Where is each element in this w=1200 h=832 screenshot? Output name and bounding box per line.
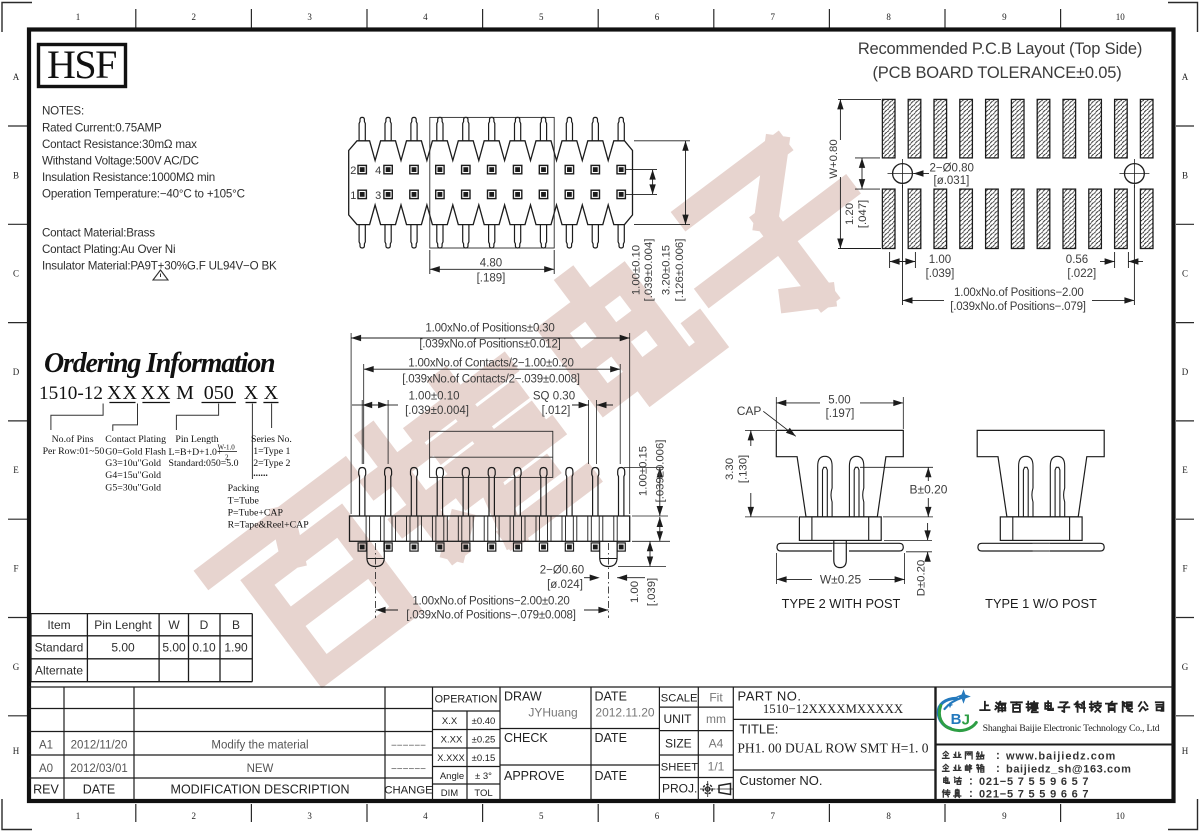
svg-text:E: E — [13, 465, 19, 475]
svg-text:DIM: DIM — [441, 788, 459, 799]
svg-text:Operation Temperature:−40°C to: Operation Temperature:−40°C to +105°C — [42, 188, 245, 201]
svg-text:Contact Resistance:30mΩ max: Contact Resistance:30mΩ max — [42, 138, 197, 151]
svg-text:G: G — [13, 662, 20, 672]
svg-text:[.039±0.004]: [.039±0.004] — [643, 239, 655, 302]
svg-text:X.XXX: X.XXX — [437, 753, 464, 763]
svg-text:[.012]: [.012] — [542, 405, 571, 417]
svg-text:W: W — [168, 618, 180, 632]
svg-text:JYHuang: JYHuang — [528, 706, 577, 720]
svg-text:1.00±0.10: 1.00±0.10 — [630, 245, 642, 295]
svg-text:A4: A4 — [709, 737, 724, 751]
svg-text:CAP: CAP — [737, 404, 762, 418]
svg-text::: : — [996, 763, 1000, 775]
svg-text:Pin Length: Pin Length — [175, 434, 218, 445]
svg-text:10: 10 — [1116, 811, 1126, 821]
svg-text:Rated Current:0.75AMP: Rated Current:0.75AMP — [42, 122, 162, 135]
svg-text:B: B — [13, 170, 19, 180]
svg-text:CHECK: CHECK — [504, 731, 548, 745]
svg-text:Recommended P.C.B Layout (Top: Recommended P.C.B Layout (Top Side) — [858, 40, 1142, 58]
svg-text:4.80: 4.80 — [480, 258, 502, 270]
svg-text:6: 6 — [655, 12, 660, 22]
svg-text:J: J — [962, 712, 970, 729]
svg-text:B: B — [1182, 170, 1188, 180]
svg-text:C: C — [1182, 269, 1188, 279]
svg-text:1.00±0.15: 1.00±0.15 — [638, 446, 650, 496]
svg-text:NOTES:: NOTES: — [42, 105, 84, 118]
svg-text:7: 7 — [771, 12, 776, 22]
svg-text:021−5 7 5 5 9 6 5 7: 021−5 7 5 5 9 6 5 7 — [979, 776, 1089, 788]
svg-text:1/1: 1/1 — [708, 760, 725, 774]
svg-text:[.039xNo.of Contacts/2−.039±0.: [.039xNo.of Contacts/2−.039±0.008] — [402, 374, 580, 386]
svg-text:8: 8 — [886, 12, 891, 22]
svg-text:4: 4 — [375, 165, 381, 177]
svg-text:1.00: 1.00 — [929, 254, 951, 266]
svg-text:A0: A0 — [39, 763, 53, 775]
svg-text:H: H — [13, 746, 20, 756]
svg-text:[.039±0.006]: [.039±0.006] — [655, 440, 667, 503]
svg-text:X: X — [244, 382, 259, 404]
svg-text:SCALE: SCALE — [661, 693, 698, 705]
svg-text:APPROVE: APPROVE — [504, 769, 564, 783]
svg-text:1.00xNo.of Positions±0.30: 1.00xNo.of Positions±0.30 — [425, 323, 554, 335]
svg-text:Contact Material:Brass: Contact Material:Brass — [42, 227, 155, 240]
svg-text:Series No.: Series No. — [251, 434, 292, 445]
svg-text:050: 050 — [204, 382, 234, 404]
svg-text:(PCB BOARD TOLERANCE±0.05): (PCB BOARD TOLERANCE±0.05) — [873, 64, 1122, 82]
svg-text:DATE: DATE — [595, 769, 627, 783]
svg-text:G: G — [1182, 662, 1189, 672]
svg-text:TYPE 1 W/O POST: TYPE 1 W/O POST — [985, 596, 1097, 611]
svg-text:3.20±0.15: 3.20±0.15 — [660, 245, 672, 295]
svg-text::: : — [969, 788, 973, 800]
svg-text:5.00: 5.00 — [162, 641, 186, 655]
svg-text:M: M — [176, 382, 194, 404]
svg-text:−−−−−−: −−−−−− — [391, 764, 426, 775]
svg-text:C: C — [13, 269, 19, 279]
svg-text:Ordering Information: Ordering Information — [44, 348, 275, 379]
svg-text:[.130]: [.130] — [738, 455, 750, 483]
svg-text:−−−−−−: −−−−−− — [391, 741, 426, 752]
svg-text:Fit: Fit — [709, 691, 723, 705]
svg-text:DATE: DATE — [595, 690, 627, 704]
svg-text:[.039]: [.039] — [646, 578, 658, 606]
svg-text:2−Ø0.60: 2−Ø0.60 — [540, 565, 584, 577]
svg-text:Contact Plating:Au Over Ni: Contact Plating:Au Over Ni — [42, 243, 175, 256]
svg-text:SIZE: SIZE — [665, 737, 692, 751]
svg-text:XX: XX — [107, 382, 138, 404]
svg-text:DATE: DATE — [83, 783, 115, 797]
svg-text:[.039±0.004]: [.039±0.004] — [405, 405, 469, 417]
svg-text:X.XX: X.XX — [441, 735, 463, 746]
svg-text:G0=Gold Flash: G0=Gold Flash — [105, 446, 166, 457]
svg-text:A: A — [13, 72, 20, 82]
svg-text:7: 7 — [771, 811, 776, 821]
svg-text:9: 9 — [1002, 811, 1007, 821]
svg-text:UNIT: UNIT — [664, 712, 693, 726]
svg-text:mm: mm — [706, 712, 726, 726]
svg-text:A1: A1 — [39, 740, 53, 752]
svg-text:G5=30u"Gold: G5=30u"Gold — [105, 482, 161, 493]
svg-text:4: 4 — [423, 12, 428, 22]
svg-text:[.039]: [.039] — [926, 268, 955, 280]
svg-text:A: A — [1182, 72, 1189, 82]
svg-text:W±0.25: W±0.25 — [820, 573, 862, 587]
svg-text:[.189]: [.189] — [477, 273, 506, 285]
svg-text:TOL: TOL — [474, 788, 492, 799]
svg-text:W-1.0: W-1.0 — [218, 444, 236, 452]
svg-text:F: F — [13, 564, 18, 574]
svg-text:2: 2 — [192, 811, 197, 821]
svg-text:PROJ.: PROJ. — [662, 782, 697, 796]
svg-text:[.126±0.006]: [.126±0.006] — [674, 239, 686, 302]
svg-text:0.10: 0.10 — [192, 641, 216, 655]
svg-text:SHEET: SHEET — [661, 762, 698, 774]
svg-text:HSF: HSF — [47, 42, 116, 87]
svg-text:1: 1 — [76, 12, 81, 22]
svg-text:±0.40: ±0.40 — [472, 716, 496, 727]
svg-text:Shanghai Baijie Electronic Tec: Shanghai Baijie Electronic Technology Co… — [983, 723, 1160, 734]
svg-text:[ø.031]: [ø.031] — [934, 175, 970, 187]
svg-text:Contact Plating: Contact Plating — [105, 434, 166, 445]
svg-text:± 3°: ± 3° — [475, 771, 492, 782]
svg-text:1510-12: 1510-12 — [39, 383, 103, 404]
svg-text:1.00xNo.of Contacts/2−1.00±0.2: 1.00xNo.of Contacts/2−1.00±0.20 — [408, 358, 573, 370]
svg-text:L=B+D+1.0+: L=B+D+1.0+ — [169, 447, 223, 458]
svg-text:W+0.80: W+0.80 — [828, 139, 840, 178]
svg-text:T=Tube: T=Tube — [228, 495, 260, 506]
svg-text:[ø.024]: [ø.024] — [547, 579, 583, 591]
svg-text:2: 2 — [350, 165, 356, 177]
svg-text:F: F — [1182, 564, 1187, 574]
svg-text:TYPE 2 WITH POST: TYPE 2 WITH POST — [782, 596, 901, 611]
svg-text:3: 3 — [307, 12, 312, 22]
svg-text:[.197]: [.197] — [826, 408, 855, 420]
svg-text:DRAW: DRAW — [504, 690, 542, 704]
svg-text:Packing: Packing — [228, 483, 260, 494]
svg-text:9: 9 — [1002, 12, 1007, 22]
svg-text:B: B — [232, 618, 240, 632]
svg-text:10: 10 — [1116, 12, 1126, 22]
svg-text:[.039xNo.of Positions−.079±0.0: [.039xNo.of Positions−.079±0.008] — [406, 610, 575, 622]
svg-text:D: D — [200, 618, 209, 632]
svg-text:PH1. 00 DUAL ROW SMT H=1. 0: PH1. 00 DUAL ROW SMT H=1. 0 — [737, 741, 928, 756]
svg-text:Customer NO.: Customer NO. — [739, 773, 822, 788]
svg-text:REV: REV — [33, 783, 59, 797]
svg-text:1: 1 — [350, 190, 356, 202]
svg-text::: : — [996, 750, 1000, 762]
svg-text:XX: XX — [141, 382, 172, 404]
svg-text:8: 8 — [886, 811, 891, 821]
svg-text:1.00: 1.00 — [629, 581, 641, 603]
svg-text:No.of Pins: No.of Pins — [52, 434, 94, 445]
svg-text:1=Type 1: 1=Type 1 — [253, 446, 290, 457]
svg-text:2: 2 — [192, 12, 197, 22]
svg-text:Pin Lenght: Pin Lenght — [94, 618, 152, 632]
svg-text:baijiedz_sh@163.com: baijiedz_sh@163.com — [1006, 764, 1131, 776]
svg-text:P=Tube+CAP: P=Tube+CAP — [228, 508, 284, 519]
svg-text:4: 4 — [423, 811, 428, 821]
svg-text:3: 3 — [375, 190, 381, 202]
svg-text:2012/11/20: 2012/11/20 — [71, 740, 128, 752]
svg-text:www.baijiedz.com: www.baijiedz.com — [1005, 751, 1116, 763]
svg-text:5.00: 5.00 — [111, 641, 135, 655]
svg-text:1.00xNo.of Positions−2.00±0.20: 1.00xNo.of Positions−2.00±0.20 — [412, 596, 569, 608]
svg-text:5: 5 — [539, 811, 544, 821]
svg-text:D: D — [13, 367, 20, 377]
svg-text:[.022]: [.022] — [1067, 268, 1096, 280]
svg-text:H: H — [1182, 746, 1189, 756]
svg-text:1.20: 1.20 — [844, 203, 856, 225]
svg-text:D±0.20: D±0.20 — [916, 560, 928, 596]
svg-text:TITLE:: TITLE: — [739, 722, 778, 737]
svg-text:6: 6 — [655, 811, 660, 821]
svg-text:G3=10u"Gold: G3=10u"Gold — [105, 458, 161, 469]
svg-text::: : — [969, 776, 973, 788]
svg-text:±0.25: ±0.25 — [472, 735, 496, 746]
svg-text:1: 1 — [76, 811, 81, 821]
svg-text:Withstand Voltage:500V AC/DC: Withstand Voltage:500V AC/DC — [42, 155, 199, 168]
svg-text:0.56: 0.56 — [1066, 254, 1088, 266]
svg-text:Alternate: Alternate — [35, 664, 83, 678]
svg-text:1.90: 1.90 — [224, 641, 248, 655]
svg-text:1510−12XXXXMXXXXX: 1510−12XXXXMXXXXX — [763, 702, 904, 716]
svg-text:[.039xNo.of Positions−.079]: [.039xNo.of Positions−.079] — [950, 301, 1086, 313]
svg-text:B: B — [951, 711, 962, 728]
svg-text:Insulation Resistance:1000MΩ m: Insulation Resistance:1000MΩ min — [42, 171, 215, 184]
svg-text:OPERATION: OPERATION — [435, 694, 498, 706]
svg-text:MODIFICATION DESCRIPTION: MODIFICATION DESCRIPTION — [171, 783, 350, 797]
svg-text:[.047]: [.047] — [857, 200, 869, 228]
svg-text:5.00: 5.00 — [828, 395, 850, 407]
svg-text:Standard:050=5.0: Standard:050=5.0 — [169, 458, 239, 469]
svg-text:SQ 0.30: SQ 0.30 — [533, 391, 575, 403]
svg-text:3.30: 3.30 — [724, 458, 736, 480]
svg-text:NEW: NEW — [247, 763, 274, 775]
svg-text:B±0.20: B±0.20 — [910, 483, 948, 497]
svg-text:Per Row:01~50: Per Row:01~50 — [43, 446, 105, 457]
svg-text:X: X — [264, 382, 279, 404]
svg-text:1.00±0.10: 1.00±0.10 — [408, 391, 459, 403]
svg-text:DATE: DATE — [595, 731, 627, 745]
svg-text:E: E — [1182, 465, 1188, 475]
svg-text:021−5 7 5 5 9 6 6 7: 021−5 7 5 5 9 6 6 7 — [979, 789, 1089, 801]
svg-text:1.00xNo.of Positions−2.00: 1.00xNo.of Positions−2.00 — [954, 287, 1084, 299]
svg-text:3: 3 — [307, 811, 312, 821]
svg-text:Item: Item — [47, 618, 70, 632]
svg-text:D: D — [1182, 367, 1189, 377]
svg-text:Modify the material: Modify the material — [211, 740, 308, 752]
svg-text:Angle: Angle — [440, 771, 464, 782]
svg-text:......: ...... — [253, 468, 268, 479]
svg-text:R=Tape&Reel+CAP: R=Tape&Reel+CAP — [228, 519, 310, 530]
svg-text:[.039xNo.of Positions±0.012]: [.039xNo.of Positions±0.012] — [419, 339, 560, 351]
svg-text:G4=15u"Gold: G4=15u"Gold — [105, 470, 161, 481]
svg-text:CHANGE: CHANGE — [384, 785, 433, 797]
svg-text:2012.11.20: 2012.11.20 — [595, 706, 654, 720]
svg-text:X.X: X.X — [442, 716, 458, 727]
svg-text:±0.15: ±0.15 — [472, 753, 496, 764]
svg-text:Standard: Standard — [35, 641, 84, 655]
svg-text:2−Ø0.80: 2−Ø0.80 — [930, 163, 974, 175]
svg-text:5: 5 — [539, 12, 544, 22]
svg-text:2012/03/01: 2012/03/01 — [70, 763, 128, 775]
